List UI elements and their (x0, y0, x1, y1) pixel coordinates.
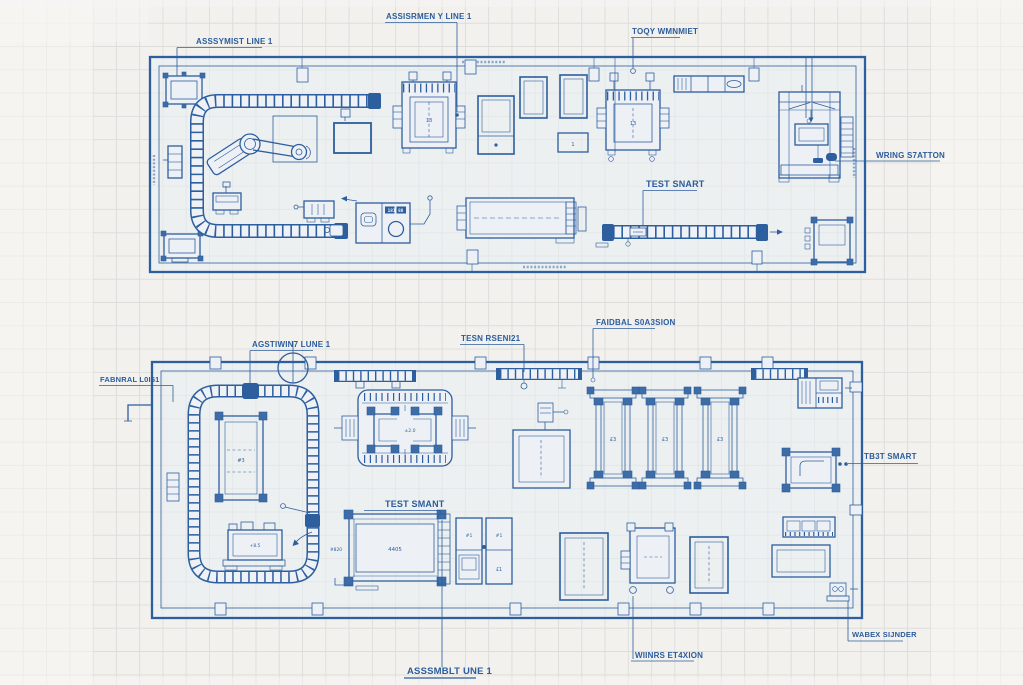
storage-cabinet-row (674, 76, 744, 92)
svg-text:TESN RSENI21: TESN RSENI21 (461, 334, 521, 343)
long-bench-machine (457, 198, 586, 243)
bench-cabinet-1: #1 (456, 518, 482, 584)
access-ladder (841, 117, 853, 157)
bench-side-id: #820 (330, 547, 342, 553)
rail-id: £3 (717, 437, 723, 443)
bench-id: 4405 (388, 547, 402, 553)
press-machine-left: 13 (393, 72, 465, 153)
bottom-floor-plan: #3 +8.5 (124, 341, 862, 618)
conveyor-drive (756, 224, 768, 241)
rail-id: £3 (662, 437, 668, 443)
rail-id: £3 (610, 437, 616, 443)
svg-text:ASSISRMEN Y LINE 1: ASSISRMEN Y LINE 1 (386, 12, 472, 21)
svg-text:WRING S7ATTON: WRING S7ATTON (876, 151, 945, 160)
conveyor-drive (602, 224, 614, 241)
panel-display-readout: 181 88 (388, 208, 404, 214)
svg-text:WIINRS ET4XION: WIINRS ET4XION (635, 651, 703, 660)
svg-text:TOQY WMNMIET: TOQY WMNMIET (632, 27, 698, 36)
slot-shelf (783, 517, 835, 537)
svg-text:TEST SMANT: TEST SMANT (385, 499, 445, 509)
table-id: #3 (237, 458, 244, 464)
svg-text:ASSSYMIST LINE 1: ASSSYMIST LINE 1 (196, 37, 273, 46)
svg-text:AGSTIWIN7 LUNE 1: AGSTIWIN7 LUNE 1 (252, 340, 331, 349)
press-id: 13 (630, 121, 636, 127)
cabinet-id: #1 (466, 533, 473, 539)
table-id: 1 (571, 142, 574, 148)
cabinet-id: #1 (496, 533, 503, 539)
press-id: 13 (426, 118, 432, 124)
svg-text:FAIDBAL S0A3SION: FAIDBAL S0A3SION (596, 318, 676, 327)
conveyor-drive (368, 93, 381, 109)
cabinet-id: £1 (496, 567, 502, 573)
table-reading: +8.5 (250, 543, 261, 549)
svg-text:ASSSMBLT UNE 1: ASSSMBLT UNE 1 (407, 666, 492, 677)
clamp-tolerance: ±2.0 (404, 428, 415, 434)
wall-cabinet (167, 473, 179, 501)
svg-text:TB3T SMART: TB3T SMART (864, 452, 917, 461)
bench-cabinet-2: #1 £1 (482, 518, 512, 584)
robot-gripper (292, 145, 307, 160)
svg-text:WABEX SIJNDER: WABEX SIJNDER (852, 630, 917, 639)
conveyor-drive (305, 514, 320, 527)
top-floor-plan: 181 88 13 (150, 57, 865, 272)
pallet-station (161, 231, 203, 262)
svg-text:TEST SNART: TEST SNART (646, 179, 705, 189)
conveyor-drive (242, 383, 259, 399)
svg-text:FABNRAL L0I61: FABNRAL L0I61 (100, 375, 160, 384)
blueprint-sheet: 181 88 13 (0, 0, 1023, 685)
